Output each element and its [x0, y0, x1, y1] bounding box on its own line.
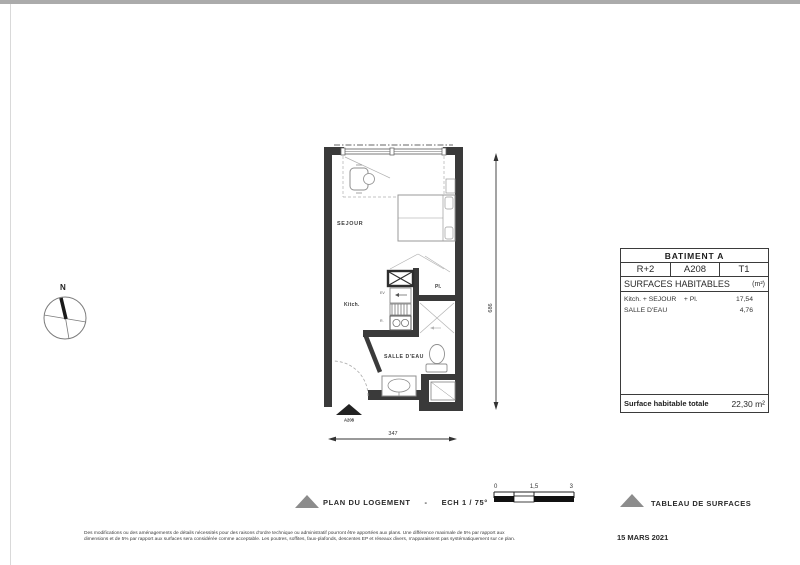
- table-row: SALLE D'EAU 4,76: [624, 307, 765, 314]
- toilet: [426, 345, 447, 373]
- bed: [398, 179, 455, 241]
- window: [341, 148, 446, 155]
- fixture-label-sink: EV: [380, 291, 385, 295]
- dimension-width-value: 347: [388, 431, 397, 437]
- surface-table-total-row: Surface habitable totale 22,30 m²: [621, 394, 768, 412]
- surface-total-label: Surface habitable totale: [624, 399, 709, 408]
- surface-table-building: BATIMENT A: [621, 249, 768, 263]
- kitchen-sink: [390, 288, 411, 303]
- bathroom-partition: [365, 334, 380, 372]
- scale-mid-label: 1,5: [530, 484, 539, 490]
- plan-legend-triangle-icon: [295, 495, 319, 508]
- page-top-border: [0, 0, 800, 4]
- fixture-label-fridge: R.: [380, 319, 384, 323]
- table-legend-triangle-icon: [620, 494, 644, 507]
- scale-bar-drawing: 0 1,5 3: [493, 480, 575, 506]
- bathroom-sink: [382, 376, 416, 396]
- surface-table-floor: R+2: [621, 263, 670, 276]
- floor-plan: SEJOUR Kitch. SALLE D'EAU Pl. EV R. A208…: [310, 138, 510, 468]
- scale-bar: 0 1,5 3: [493, 480, 575, 506]
- surface-table-unit-row: R+2 A208 T1: [621, 263, 768, 277]
- scale-start-label: 0: [494, 484, 498, 490]
- room-label-sejour: SEJOUR: [337, 221, 363, 227]
- compass-needle: [61, 298, 66, 319]
- plan-legend-separator: -: [425, 498, 428, 507]
- surface-table-section-title: SURFACES HABITABLES: [624, 279, 730, 289]
- dimension-height-value: 686: [488, 303, 494, 312]
- table-legend-label: TABLEAU DE SURFACES: [651, 499, 751, 508]
- disclaimer: Des modifications ou des aménagements de…: [84, 531, 582, 542]
- compass-north-label: N: [60, 283, 66, 292]
- surface-table-items: Kitch. + SEJOUR + Pl. 17,54 SALLE D'EAU …: [621, 292, 768, 394]
- surface-row-label: SALLE D'EAU: [624, 307, 667, 314]
- plan-legend-label: PLAN DU LOGEMENT: [323, 498, 411, 507]
- room-label-bathroom: SALLE D'EAU: [384, 354, 424, 360]
- date: 15 MARS 2021: [617, 533, 668, 542]
- surface-total-value: 22,30 m²: [731, 399, 765, 409]
- room-label-kitchen: Kitch.: [344, 302, 360, 308]
- table-row: Kitch. + SEJOUR + Pl. 17,54: [624, 296, 765, 303]
- disclaimer-line-2: dimensions et de 5% par rapport aux surf…: [84, 537, 582, 543]
- entry-marker: A208: [336, 404, 362, 423]
- compass-drawing: N: [35, 275, 95, 345]
- surface-row-value: 4,76: [740, 307, 765, 314]
- surface-row-value: 17,54: [736, 296, 765, 303]
- entry-door-swing: [333, 361, 368, 396]
- surface-table-section-unit: (m²): [752, 281, 765, 288]
- kitchen-drainer: [390, 304, 411, 315]
- dimension-height: 686: [488, 153, 498, 410]
- surface-row-label: Kitch. + SEJOUR + Pl.: [624, 296, 698, 303]
- room-label-closet: Pl.: [435, 284, 442, 290]
- plan-legend-scale: ECH 1 / 75°: [442, 498, 488, 507]
- shower: [431, 382, 455, 400]
- page-left-border: [10, 4, 11, 565]
- surface-table: BATIMENT A R+2 A208 T1 SURFACES HABITABL…: [620, 248, 769, 413]
- scale-end-label: 3: [570, 484, 574, 490]
- plan-legend: PLAN DU LOGEMENT - ECH 1 / 75°: [323, 498, 488, 507]
- surface-table-type: T1: [719, 263, 768, 276]
- floor-plan-drawing: SEJOUR Kitch. SALLE D'EAU Pl. EV R. A208…: [310, 138, 510, 468]
- surface-table-unit: A208: [670, 263, 719, 276]
- surface-table-section-header: SURFACES HABITABLES (m²): [621, 277, 768, 292]
- kitchen-unit: [388, 271, 413, 330]
- dimension-width: 347: [328, 431, 457, 441]
- compass: N: [35, 275, 95, 345]
- entry-marker-label: A208: [344, 418, 355, 423]
